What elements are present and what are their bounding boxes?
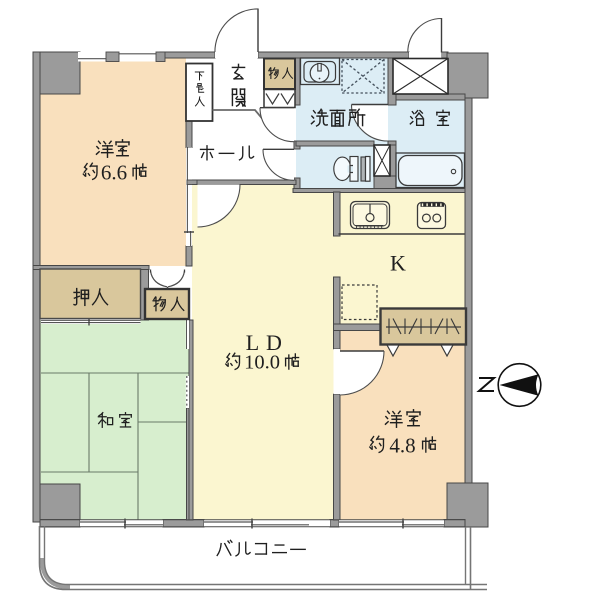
- svg-text:4.8: 4.8: [389, 434, 415, 458]
- svg-text:K: K: [390, 251, 406, 276]
- svg-text:6.6: 6.6: [101, 161, 127, 185]
- svg-text:10.0: 10.0: [244, 352, 280, 374]
